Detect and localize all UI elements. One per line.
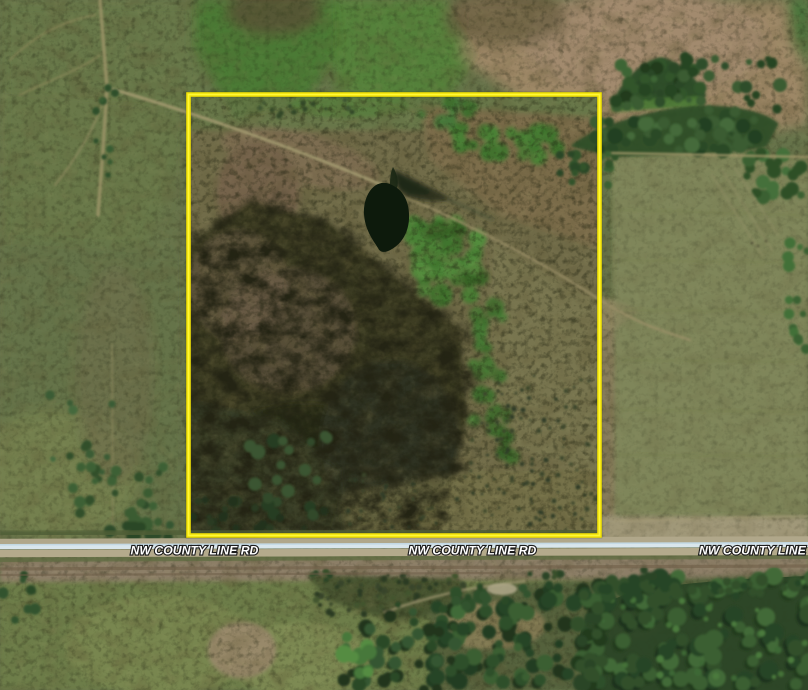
- svg-text:NW COUNTY LINE RD: NW COUNTY LINE RD: [699, 544, 808, 558]
- svg-text:NW COUNTY LINE RD: NW COUNTY LINE RD: [409, 544, 537, 558]
- svg-text:NW COUNTY LINE RD: NW COUNTY LINE RD: [131, 544, 259, 558]
